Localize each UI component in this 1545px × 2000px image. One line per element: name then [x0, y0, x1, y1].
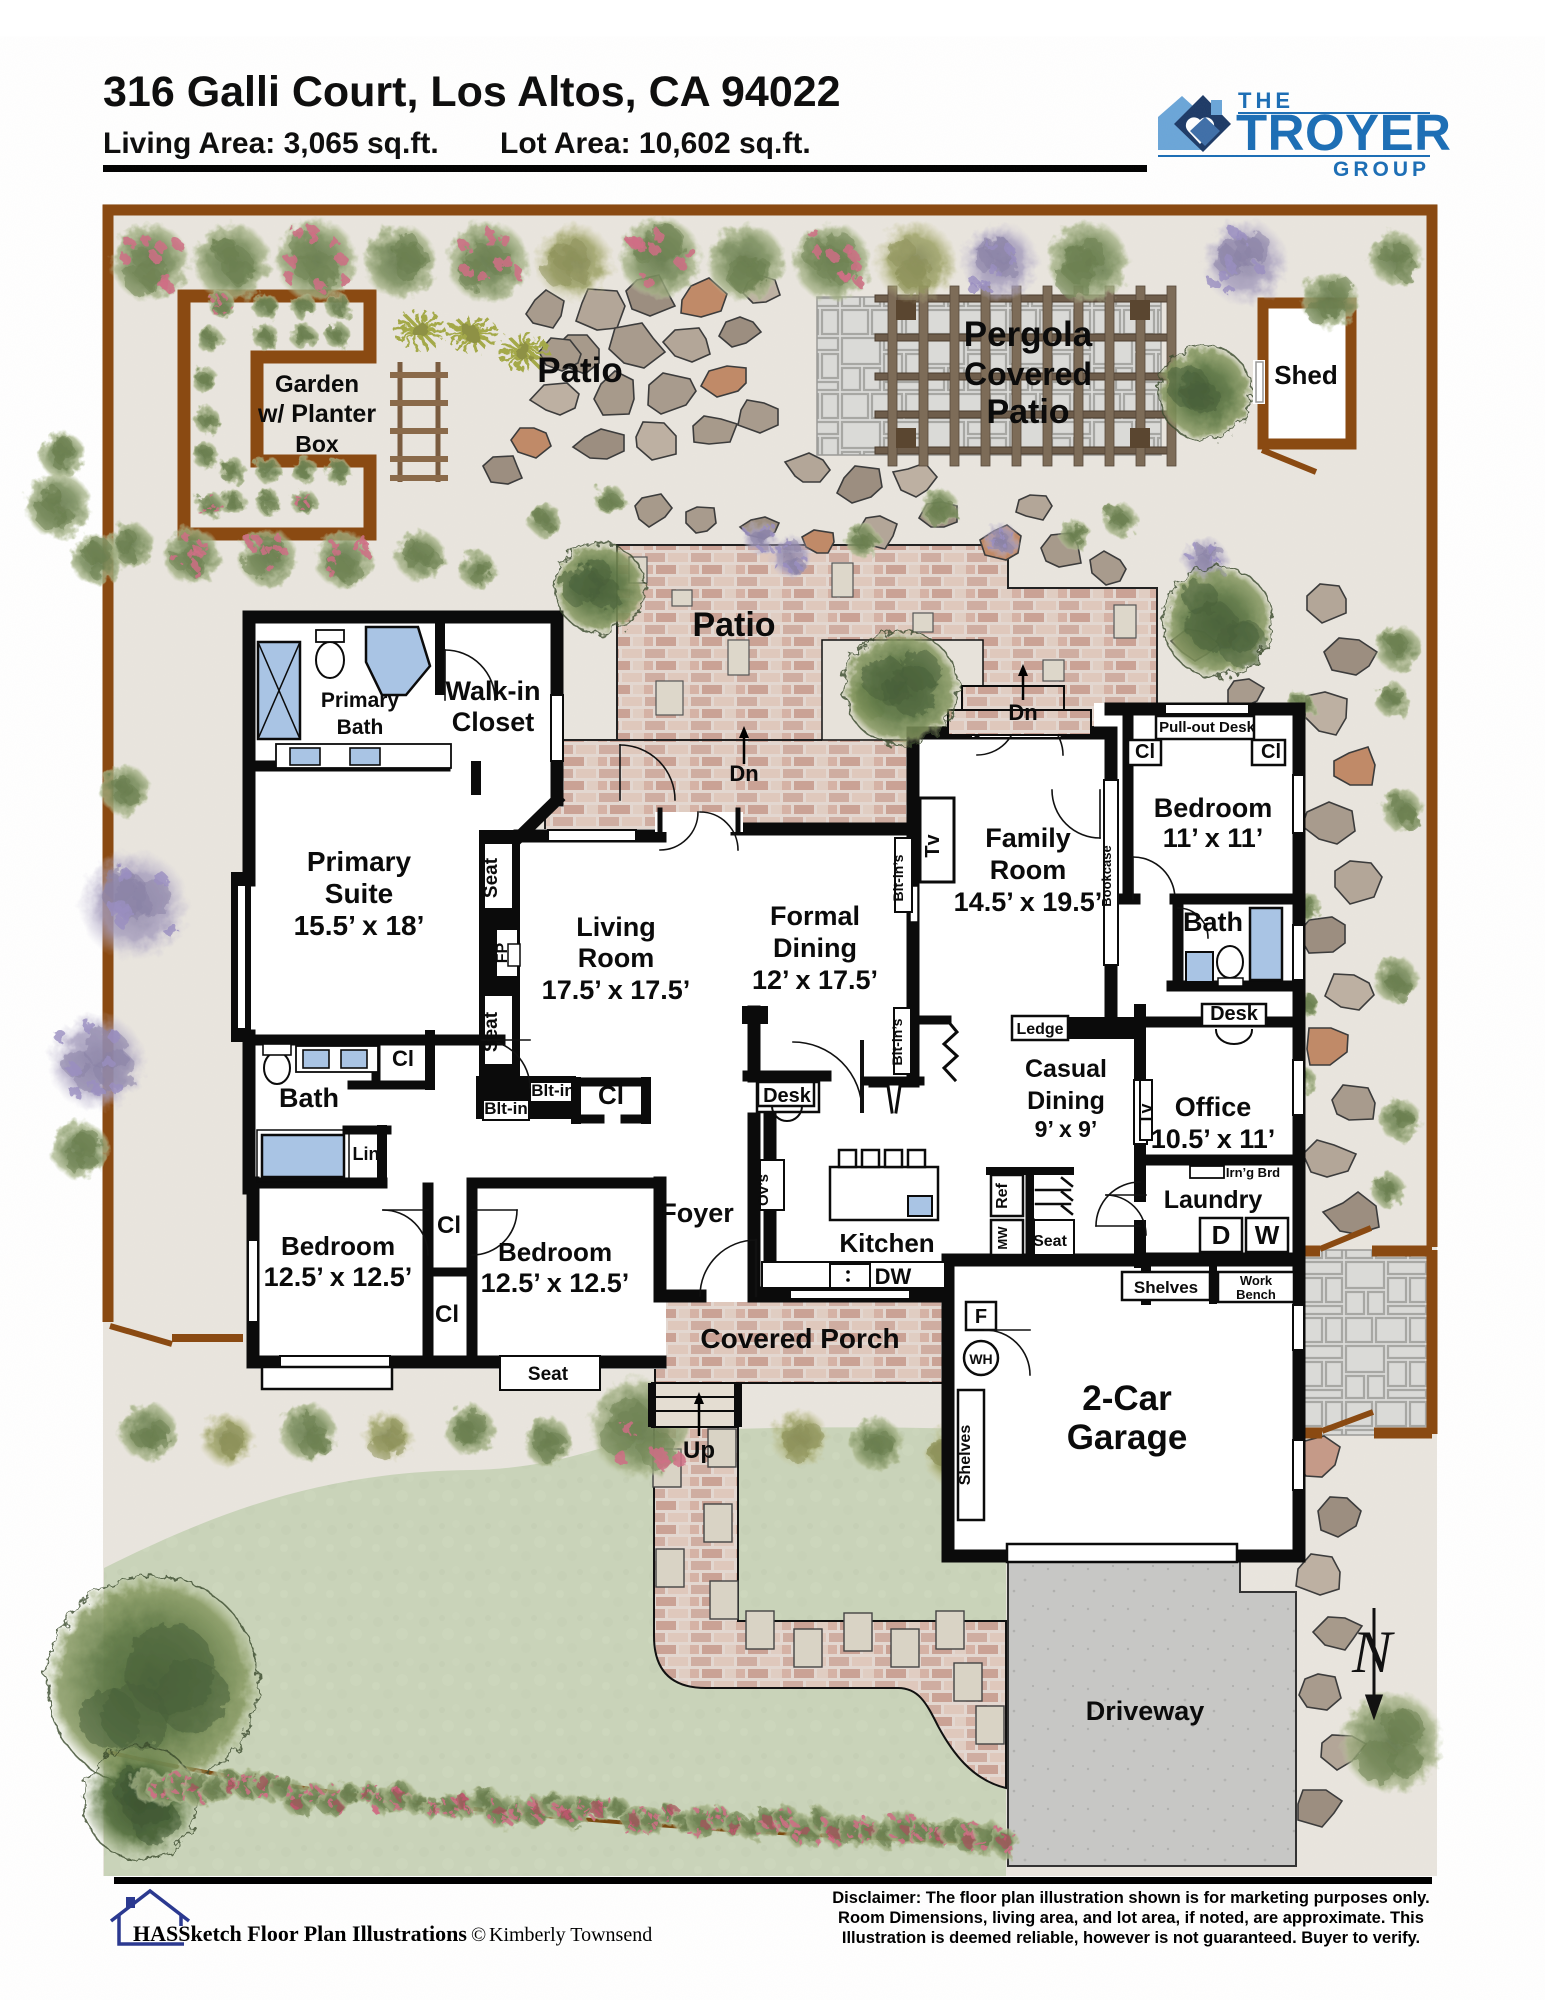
svg-text:Shed: Shed [1274, 360, 1338, 390]
svg-text:316 Galli Court, Los Altos, CA: 316 Galli Court, Los Altos, CA 94022 [103, 68, 841, 116]
svg-text:Office: Office [1175, 1092, 1252, 1122]
svg-text:Kitchen: Kitchen [839, 1228, 934, 1258]
svg-text:FP: FP [494, 942, 511, 963]
svg-text:Closet: Closet [452, 707, 535, 737]
svg-text:14.5’ x 19.5’: 14.5’ x 19.5’ [954, 887, 1103, 917]
svg-text:Irn’g Brd: Irn’g Brd [1226, 1165, 1280, 1180]
svg-text:Up: Up [683, 1437, 715, 1464]
svg-text:Garage: Garage [1067, 1418, 1188, 1457]
svg-text:GROUP: GROUP [1333, 158, 1430, 181]
svg-text:Disclaimer: The floor plan ill: Disclaimer: The floor plan illustration … [832, 1889, 1429, 1907]
svg-text:Blt-in’s: Blt-in’s [889, 1018, 905, 1065]
svg-text:Blt-in: Blt-in [484, 1099, 527, 1118]
svg-text:15.5’ x 18’: 15.5’ x 18’ [294, 910, 425, 941]
svg-text:WH: WH [969, 1351, 992, 1367]
svg-text:Room Dimensions, living area,: Room Dimensions, living area, and lot ar… [838, 1909, 1424, 1927]
svg-text:Bedroom: Bedroom [498, 1237, 612, 1267]
svg-text:Cl: Cl [1135, 741, 1155, 763]
svg-text:Ov’s: Ov’s [755, 1174, 772, 1206]
svg-text:MW: MW [995, 1226, 1010, 1250]
svg-text:Bath: Bath [337, 716, 384, 739]
svg-text:Cl: Cl [437, 1212, 461, 1239]
svg-text:Formal: Formal [770, 901, 860, 931]
svg-text:Dn: Dn [729, 761, 758, 786]
svg-text:11’ x 11’: 11’ x 11’ [1163, 823, 1264, 853]
svg-text:Seat: Seat [528, 1364, 569, 1385]
svg-text:9’ x 9’: 9’ x 9’ [1035, 1116, 1098, 1142]
svg-text:Lot Area: 10,602 sq.ft.: Lot Area: 10,602 sq.ft. [500, 127, 811, 160]
svg-text:©: © [471, 1924, 486, 1946]
svg-text:Pergola: Pergola [964, 315, 1093, 354]
svg-text:Patio: Patio [537, 351, 623, 390]
svg-text:Pull-out Desk: Pull-out Desk [1159, 719, 1256, 736]
svg-text:Patio: Patio [986, 393, 1069, 431]
svg-text:Bath: Bath [279, 1083, 339, 1113]
svg-text:Blt-in: Blt-in [531, 1081, 574, 1100]
svg-text:TROYER: TROYER [1236, 104, 1452, 161]
svg-text:Suite: Suite [325, 878, 393, 909]
svg-text:Covered: Covered [964, 356, 1092, 392]
svg-text:Ledge: Ledge [1016, 1021, 1063, 1038]
svg-text:Shelves: Shelves [1134, 1278, 1198, 1297]
svg-text:10.5’ x 11’: 10.5’ x 11’ [1151, 1124, 1276, 1154]
svg-text:Ref: Ref [994, 1182, 1011, 1208]
svg-text:Foyer: Foyer [660, 1198, 734, 1228]
svg-text:Bedroom: Bedroom [1154, 793, 1273, 823]
svg-text:Family: Family [985, 823, 1071, 853]
svg-text:Room: Room [990, 855, 1067, 885]
svg-text:Box: Box [295, 431, 339, 457]
svg-text:Driveway: Driveway [1086, 1696, 1205, 1726]
svg-text:N: N [1351, 1619, 1395, 1685]
svg-text:12’ x 17.5’: 12’ x 17.5’ [752, 965, 878, 995]
svg-text:Dn: Dn [1008, 700, 1037, 725]
svg-text:Primary: Primary [307, 846, 412, 877]
svg-text:HASSketch Floor Plan Illustrat: HASSketch Floor Plan Illustrations [133, 1921, 467, 1946]
svg-text:2-Car: 2-Car [1082, 1379, 1172, 1418]
svg-text:Seat: Seat [481, 857, 502, 898]
svg-text:Laundry: Laundry [1164, 1186, 1263, 1214]
svg-text:Bedroom: Bedroom [281, 1231, 395, 1261]
svg-text:w/ Planter: w/ Planter [257, 400, 376, 428]
svg-text:Bench: Bench [1236, 1287, 1276, 1302]
svg-text:Bookcase: Bookcase [1099, 845, 1114, 906]
svg-text:W: W [1255, 1220, 1280, 1250]
svg-text:Living Area: 3,065 sq.ft.: Living Area: 3,065 sq.ft. [103, 127, 439, 160]
svg-text:Cl: Cl [598, 1080, 624, 1110]
svg-text:17.5’ x 17.5’: 17.5’ x 17.5’ [542, 975, 691, 1005]
svg-text:Cl: Cl [392, 1046, 414, 1071]
svg-text:Shelves: Shelves [957, 1425, 974, 1486]
svg-text:Desk: Desk [1210, 1003, 1259, 1025]
svg-text:Primary: Primary [321, 689, 400, 712]
svg-text:Tv: Tv [922, 833, 944, 857]
svg-text:Seat: Seat [1033, 1233, 1067, 1250]
svg-text:Desk: Desk [763, 1085, 812, 1107]
svg-text:Bath: Bath [1183, 907, 1243, 937]
svg-text:Covered Porch: Covered Porch [700, 1323, 899, 1354]
svg-text:12.5’ x 12.5’: 12.5’ x 12.5’ [481, 1268, 630, 1298]
svg-text:Tv: Tv [1136, 1103, 1156, 1124]
svg-text:Garden: Garden [275, 371, 359, 398]
svg-text:Walk-in: Walk-in [445, 676, 540, 706]
svg-text:Casual: Casual [1025, 1055, 1107, 1083]
svg-text:Work: Work [1240, 1273, 1273, 1288]
svg-text:DW: DW [875, 1264, 912, 1289]
svg-text:Patio: Patio [692, 606, 775, 644]
svg-text:Dining: Dining [1027, 1087, 1105, 1115]
svg-text:Lin: Lin [353, 1144, 380, 1164]
svg-text:F: F [975, 1306, 987, 1328]
svg-text:Cl: Cl [435, 1301, 459, 1328]
svg-text:Dining: Dining [773, 933, 857, 963]
svg-text:Living: Living [576, 912, 656, 942]
svg-text:Kimberly Townsend: Kimberly Townsend [489, 1924, 652, 1946]
svg-text:D: D [1212, 1220, 1231, 1250]
svg-text:Blt-in’s: Blt-in’s [890, 854, 906, 901]
svg-text:Seat: Seat [481, 1011, 502, 1052]
svg-text:Cl: Cl [1261, 741, 1281, 763]
svg-text:Room: Room [578, 943, 655, 973]
svg-text:Illustration is deemed reliabl: Illustration is deemed reliable, however… [842, 1929, 1420, 1947]
svg-text:12.5’ x 12.5’: 12.5’ x 12.5’ [264, 1262, 413, 1292]
